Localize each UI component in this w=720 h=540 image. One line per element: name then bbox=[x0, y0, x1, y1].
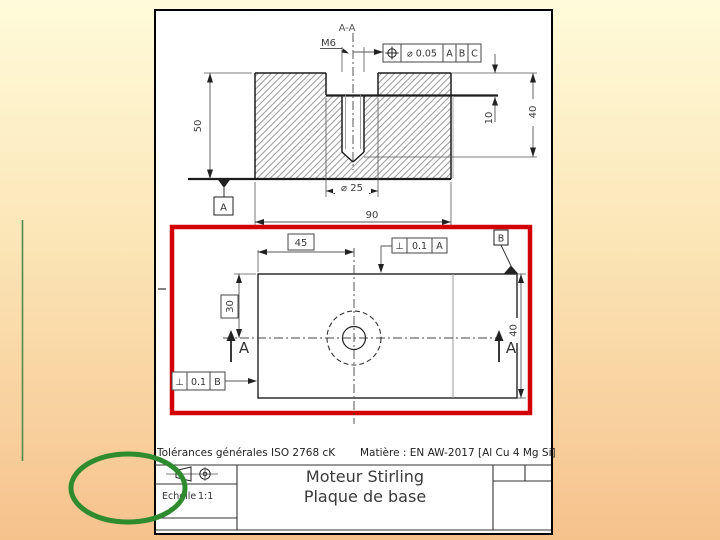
slide: A-A M6 ⌀ 0.05 A bbox=[0, 0, 720, 540]
plate-outline bbox=[258, 274, 517, 398]
drawing-title-line2: Plaque de base bbox=[304, 487, 426, 506]
section-arrow-left-label: A bbox=[239, 339, 250, 357]
dim-hole-y-text: 30 bbox=[225, 300, 236, 313]
thread-callout-text: M6 bbox=[321, 38, 336, 49]
datum-b-label: B bbox=[498, 234, 505, 245]
drawing-title-line1: Moteur Stirling bbox=[306, 467, 424, 486]
dim-cbore-depth-text: 10 bbox=[484, 112, 495, 125]
position-tolerance: ⌀ 0.05 bbox=[407, 49, 437, 60]
dim-hole-depth-text: 40 bbox=[528, 106, 539, 119]
perp-symbol-left: ⊥ bbox=[175, 377, 183, 388]
perp-tolerance-left: 0.1 bbox=[191, 377, 206, 388]
material-text: Matière : EN AW-2017 [Al Cu 4 Mg Si] bbox=[360, 447, 556, 459]
perp-datum-left: B bbox=[214, 377, 221, 388]
dim-cbore-dia-text: ⌀ 25 bbox=[341, 183, 363, 194]
dim-width-text: 90 bbox=[366, 210, 379, 221]
position-datum-2: B bbox=[459, 49, 466, 60]
perp-datum-top: A bbox=[436, 241, 443, 252]
slide-canvas: A-A M6 ⌀ 0.05 A bbox=[0, 0, 720, 540]
position-datum-1: A bbox=[446, 49, 453, 60]
scale-value: 1:1 bbox=[198, 491, 213, 502]
perp-tolerance-top: 0.1 bbox=[412, 241, 427, 252]
dim-cbore-dia: ⌀ 25 bbox=[326, 181, 378, 194]
dim-depth-text: 40 bbox=[509, 324, 520, 337]
position-datum-3: C bbox=[471, 49, 478, 60]
perp-symbol-top: ⊥ bbox=[395, 241, 403, 252]
section-label: A-A bbox=[339, 23, 356, 34]
general-tolerances-text: Tolérances générales ISO 2768 cK bbox=[156, 447, 336, 459]
datum-a-label: A bbox=[220, 203, 227, 214]
counterbore-cutout bbox=[326, 73, 378, 96]
section-arrow-right-label: A bbox=[506, 339, 517, 357]
dim-hole-x-text: 45 bbox=[295, 238, 308, 249]
dim-height-text: 50 bbox=[193, 120, 204, 133]
